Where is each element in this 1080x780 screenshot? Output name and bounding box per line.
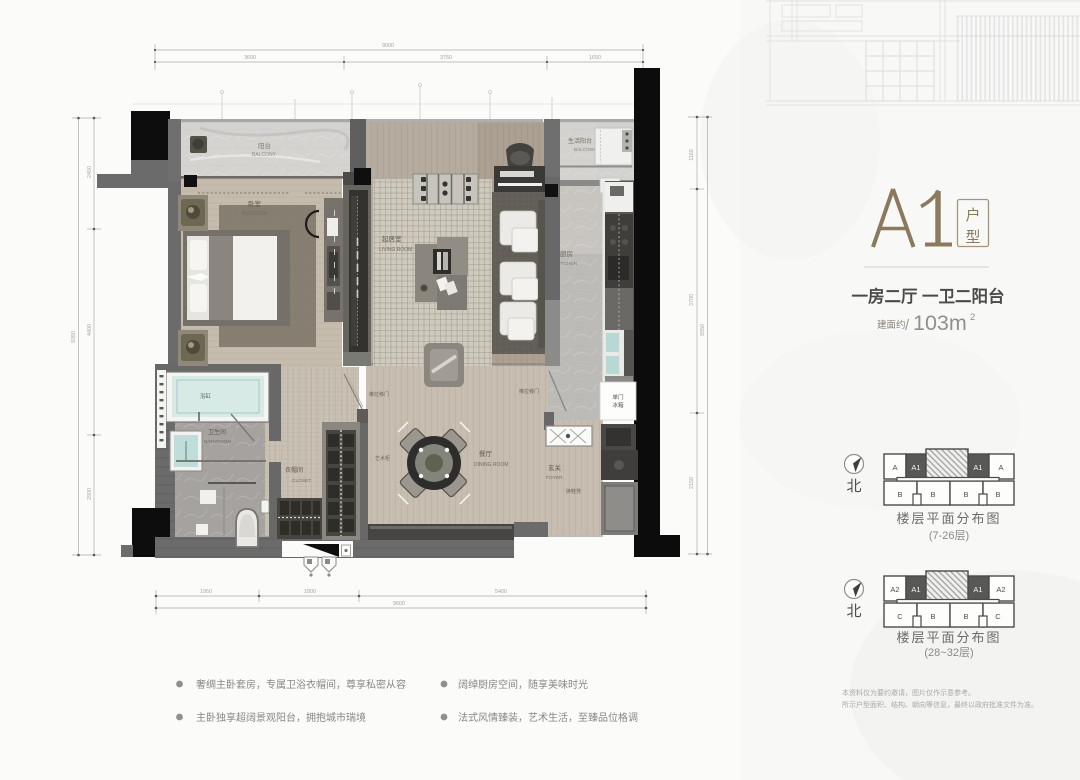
svg-text:9000: 9000: [382, 41, 394, 49]
svg-text:9600: 9600: [393, 599, 405, 607]
svg-text:3750: 3750: [440, 53, 452, 61]
svg-text:建面约: 建面约: [877, 317, 906, 331]
svg-text:所示户型面积、结构、朝向等信息，最终以政府批准文件为准。: 所示户型面积、结构、朝向等信息，最终以政府批准文件为准。: [842, 700, 1038, 710]
svg-text:B: B: [995, 489, 1000, 500]
svg-text:C: C: [995, 611, 1001, 622]
svg-text:2150: 2150: [687, 477, 695, 489]
svg-text:CLOSET: CLOSET: [292, 478, 311, 484]
svg-text:B: B: [963, 611, 968, 622]
svg-text:2: 2: [970, 312, 975, 323]
svg-text:B: B: [930, 611, 935, 622]
svg-text:推拉移门: 推拉移门: [369, 391, 389, 398]
svg-text:起居室: 起居室: [382, 233, 402, 243]
svg-text:LIVING ROOM: LIVING ROOM: [379, 247, 412, 253]
svg-text:B: B: [897, 489, 902, 500]
svg-text:艺术柜: 艺术柜: [375, 455, 390, 462]
svg-text:楼层平面分布图: 楼层平面分布图: [896, 508, 1001, 527]
svg-text:A1: A1: [973, 584, 982, 595]
svg-text:生活阳台: 生活阳台: [568, 136, 592, 145]
svg-text:型: 型: [965, 226, 980, 247]
svg-text:A: A: [998, 462, 1003, 473]
svg-text:户: 户: [965, 204, 980, 225]
svg-text:A1: A1: [911, 462, 920, 473]
svg-text:2450: 2450: [85, 166, 93, 178]
svg-text:北: 北: [846, 600, 861, 621]
svg-text:B: B: [963, 489, 968, 500]
svg-text:卧室: 卧室: [248, 198, 262, 208]
svg-text:5400: 5400: [495, 587, 507, 595]
svg-text:浴缸: 浴缸: [200, 392, 212, 400]
svg-text:FOYER: FOYER: [546, 475, 563, 481]
svg-text:本资料仅为要约邀请，图片仅作示意参考。: 本资料仅为要约邀请，图片仅作示意参考。: [842, 688, 975, 698]
svg-text:换鞋凳: 换鞋凳: [566, 488, 581, 495]
svg-text:北: 北: [846, 475, 861, 496]
svg-text:A2: A2: [996, 584, 1005, 595]
svg-text:B: B: [930, 489, 935, 500]
svg-text:A1: A1: [973, 462, 982, 473]
svg-text:A2: A2: [890, 584, 899, 595]
svg-text:BALCONY: BALCONY: [252, 152, 277, 158]
svg-text:衣帽间: 衣帽间: [285, 465, 303, 474]
svg-text:1800: 1800: [304, 587, 316, 595]
svg-text:法式风情臻装，艺术生活，至臻品位格调: 法式风情臻装，艺术生活，至臻品位格调: [458, 709, 638, 724]
svg-text:单门: 单门: [612, 393, 624, 401]
svg-text:(28~32层): (28~32层): [924, 644, 973, 660]
svg-text:阔绰厨房空间，随享美味时光: 阔绰厨房空间，随享美味时光: [458, 676, 588, 691]
svg-text:103m: 103m: [913, 311, 967, 335]
svg-text:厨房: 厨房: [560, 248, 573, 258]
svg-text:A1: A1: [911, 584, 920, 595]
svg-text:餐厅: 餐厅: [479, 448, 493, 458]
svg-text:DINING ROOM: DINING ROOM: [474, 462, 508, 468]
svg-text:1650: 1650: [589, 53, 601, 61]
svg-text:3700: 3700: [687, 294, 695, 306]
svg-text:楼层平面分布图: 楼层平面分布图: [896, 627, 1001, 646]
svg-text:BALCONY: BALCONY: [574, 147, 596, 152]
svg-text:BATHROOM: BATHROOM: [204, 439, 231, 445]
svg-text:奢绸主卧套房，专属卫浴衣帽间，尊享私密从容: 奢绸主卧套房，专属卫浴衣帽间，尊享私密从容: [196, 676, 406, 691]
svg-text:主卧独享超阔景观阳台，拥抱城市瑞境: 主卧独享超阔景观阳台，拥抱城市瑞境: [196, 709, 366, 724]
svg-text:BEDROOM: BEDROOM: [242, 211, 268, 217]
svg-text:推拉移门: 推拉移门: [519, 388, 539, 395]
svg-text:9350: 9350: [69, 331, 77, 343]
svg-text:3600: 3600: [244, 53, 256, 61]
svg-text:卫生间: 卫生间: [208, 427, 226, 436]
svg-text:9350: 9350: [698, 324, 706, 336]
svg-text:1160: 1160: [687, 149, 695, 161]
svg-text:2500: 2500: [85, 488, 93, 500]
svg-text:玄关: 玄关: [548, 462, 562, 472]
svg-text:A: A: [892, 462, 897, 473]
svg-text:1950: 1950: [200, 587, 212, 595]
svg-text:(7-26层): (7-26层): [929, 527, 969, 543]
svg-text:阳台: 阳台: [258, 140, 271, 150]
svg-text:冰箱: 冰箱: [612, 401, 624, 409]
svg-text:C: C: [897, 611, 903, 622]
svg-text:一房二厅 一卫二阳台: 一房二厅 一卫二阳台: [851, 283, 1004, 307]
svg-text:4400: 4400: [85, 324, 93, 336]
